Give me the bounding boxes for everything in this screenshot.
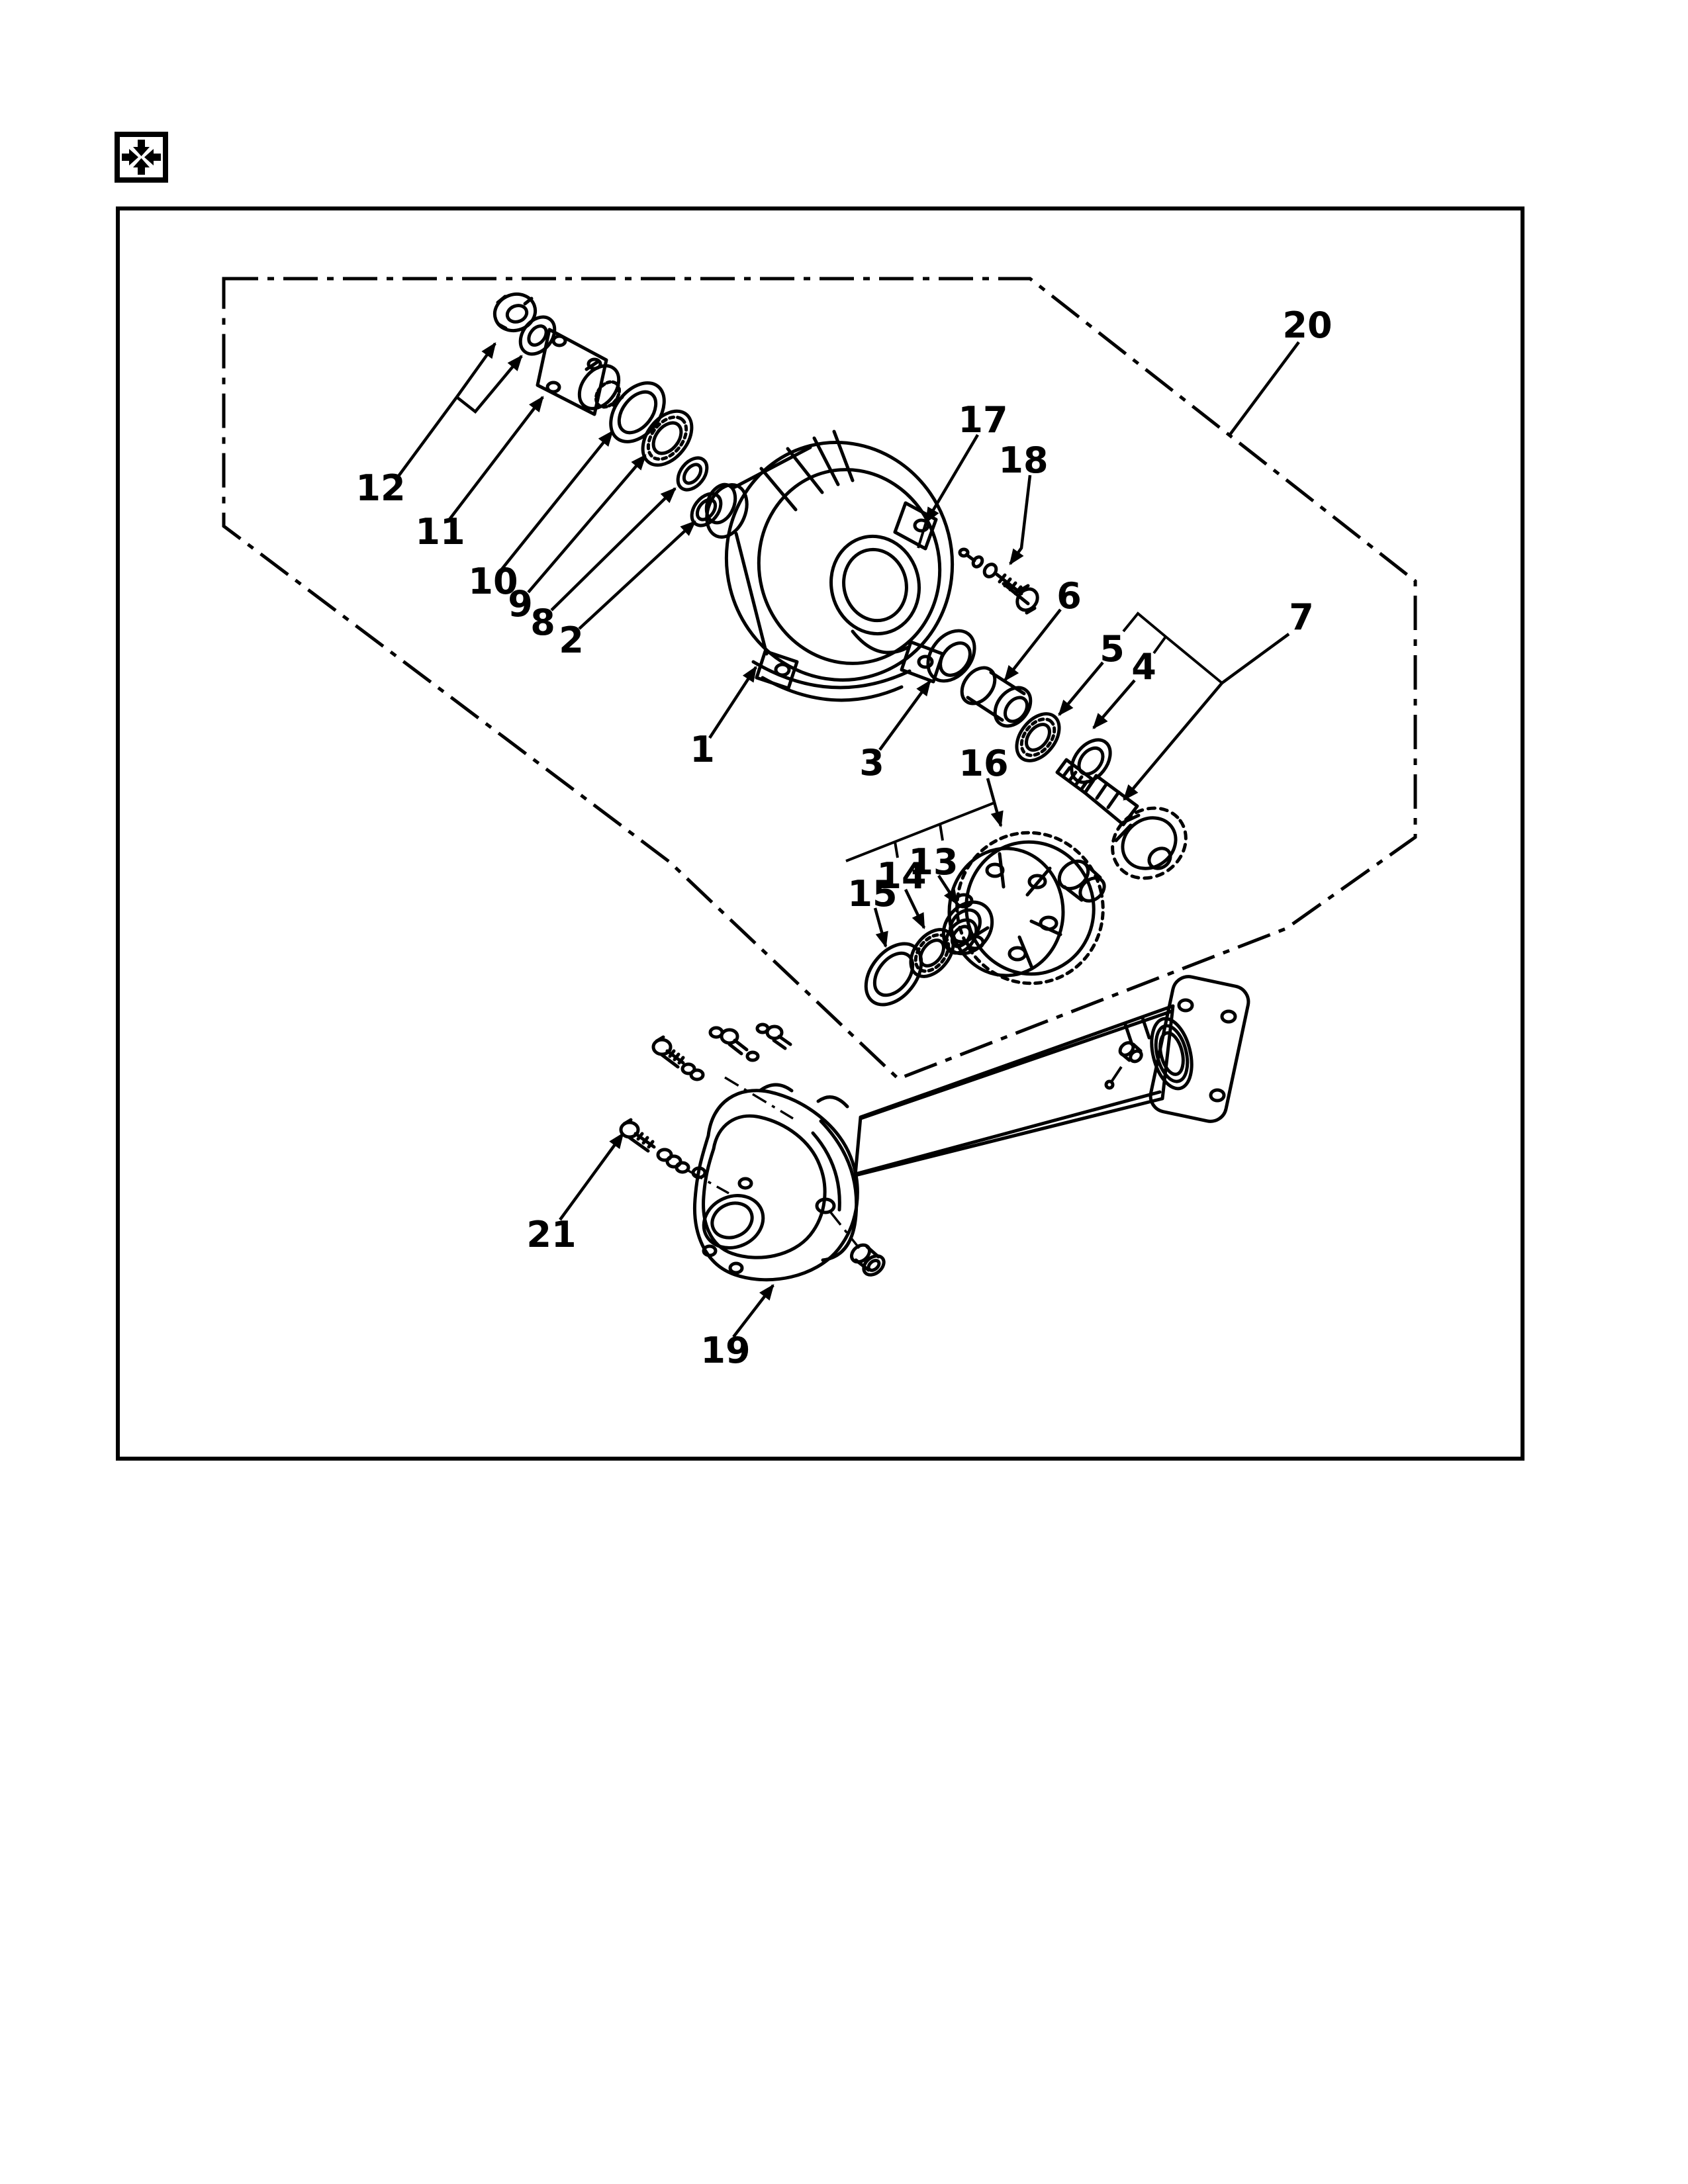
- callout-5-leader: [1059, 662, 1103, 715]
- drain-plug: [848, 1242, 887, 1279]
- part-8-bearing-cup: [672, 453, 713, 496]
- callout-18-leader: [1010, 475, 1030, 564]
- callout-4-leader: [1094, 680, 1135, 728]
- part-10-oil-seal: [600, 373, 675, 451]
- callout-17-leader: [926, 435, 978, 522]
- callout-15-number: 15: [847, 873, 897, 915]
- callout-1-leader: [710, 667, 756, 738]
- axle-tube-flange: [1148, 974, 1252, 1124]
- callout-8-leader: [551, 488, 675, 610]
- part-5-pinion-bearing: [1008, 705, 1068, 768]
- dash-leader-layer: [688, 1077, 859, 1248]
- part-18-carrier-bolt: [960, 549, 1041, 614]
- figure-border: [118, 208, 1523, 1459]
- four-arrows-inward-icon: [117, 134, 165, 180]
- callout-2: 2: [559, 522, 695, 661]
- callout-11-number: 11: [415, 511, 465, 553]
- bracket-link-4: [940, 824, 943, 841]
- callout-16-number: 16: [959, 743, 1008, 784]
- callout-20-number: 20: [1282, 304, 1332, 346]
- bracket-link-5: [918, 522, 926, 548]
- part-12-pinion-nut-and-washer: [490, 289, 562, 361]
- manual-page: 123456789101112131415161718192021: [0, 0, 1688, 2184]
- callout-8-number: 8: [530, 602, 555, 643]
- callout-4-number: 4: [1131, 646, 1156, 688]
- callout-21-number: 21: [526, 1214, 576, 1255]
- callout-17-number: 17: [958, 399, 1008, 441]
- callout-10-leader: [502, 432, 612, 569]
- exploded-diagram-canvas: 123456789101112131415161718192021: [0, 0, 1688, 2184]
- callout-19-number: 19: [700, 1330, 750, 1371]
- callout-12-number: 12: [355, 467, 405, 509]
- callout-10-number: 10: [468, 561, 518, 602]
- callout-19: 19: [700, 1285, 773, 1371]
- part-1-differential-carrier-housing: [700, 418, 978, 704]
- callout-16-leader: [988, 778, 1001, 826]
- callout-2-number: 2: [559, 619, 584, 661]
- bracket-link-6: [1111, 1067, 1121, 1083]
- callout-12: 12: [355, 343, 522, 509]
- callout-5-number: 5: [1100, 628, 1125, 670]
- part-7-drive-pinion-gear: [1057, 760, 1199, 893]
- callout-21-leader: [560, 1134, 623, 1220]
- housing-cover-bolts: [653, 1024, 790, 1079]
- part-16-ring-gear-and-case-assembly: [933, 817, 1119, 999]
- callout-6-leader: [1005, 610, 1060, 680]
- part-19-axle-housing: [693, 974, 1251, 1279]
- part-9-bearing: [633, 402, 702, 474]
- callout-2-leader: [579, 522, 695, 629]
- callout-6-number: 6: [1056, 575, 1082, 617]
- callout-20-leader: [1229, 342, 1299, 435]
- callout-18: 18: [998, 439, 1048, 564]
- callout-12-leader: [397, 343, 495, 478]
- callout-15: 15: [847, 873, 897, 946]
- dash-leader-0: [725, 1077, 793, 1118]
- callout-17: 17: [926, 399, 1008, 522]
- callout-18-number: 18: [998, 439, 1048, 481]
- part-21-housing-bolt-and-washers: [621, 1120, 688, 1172]
- callout-1: 1: [690, 667, 756, 770]
- housing-body: [694, 1091, 857, 1280]
- callout-9-leader: [528, 455, 645, 592]
- callout-11-leader: [449, 397, 543, 520]
- callout-7-number: 7: [1289, 596, 1314, 638]
- part-6-bearing-spacer: [955, 661, 1038, 733]
- callout-3-number: 3: [859, 742, 884, 784]
- callout-1-number: 1: [690, 729, 715, 770]
- callout-21: 21: [526, 1134, 623, 1255]
- callout-20: 20: [1229, 304, 1333, 435]
- callout-11: 11: [415, 397, 543, 553]
